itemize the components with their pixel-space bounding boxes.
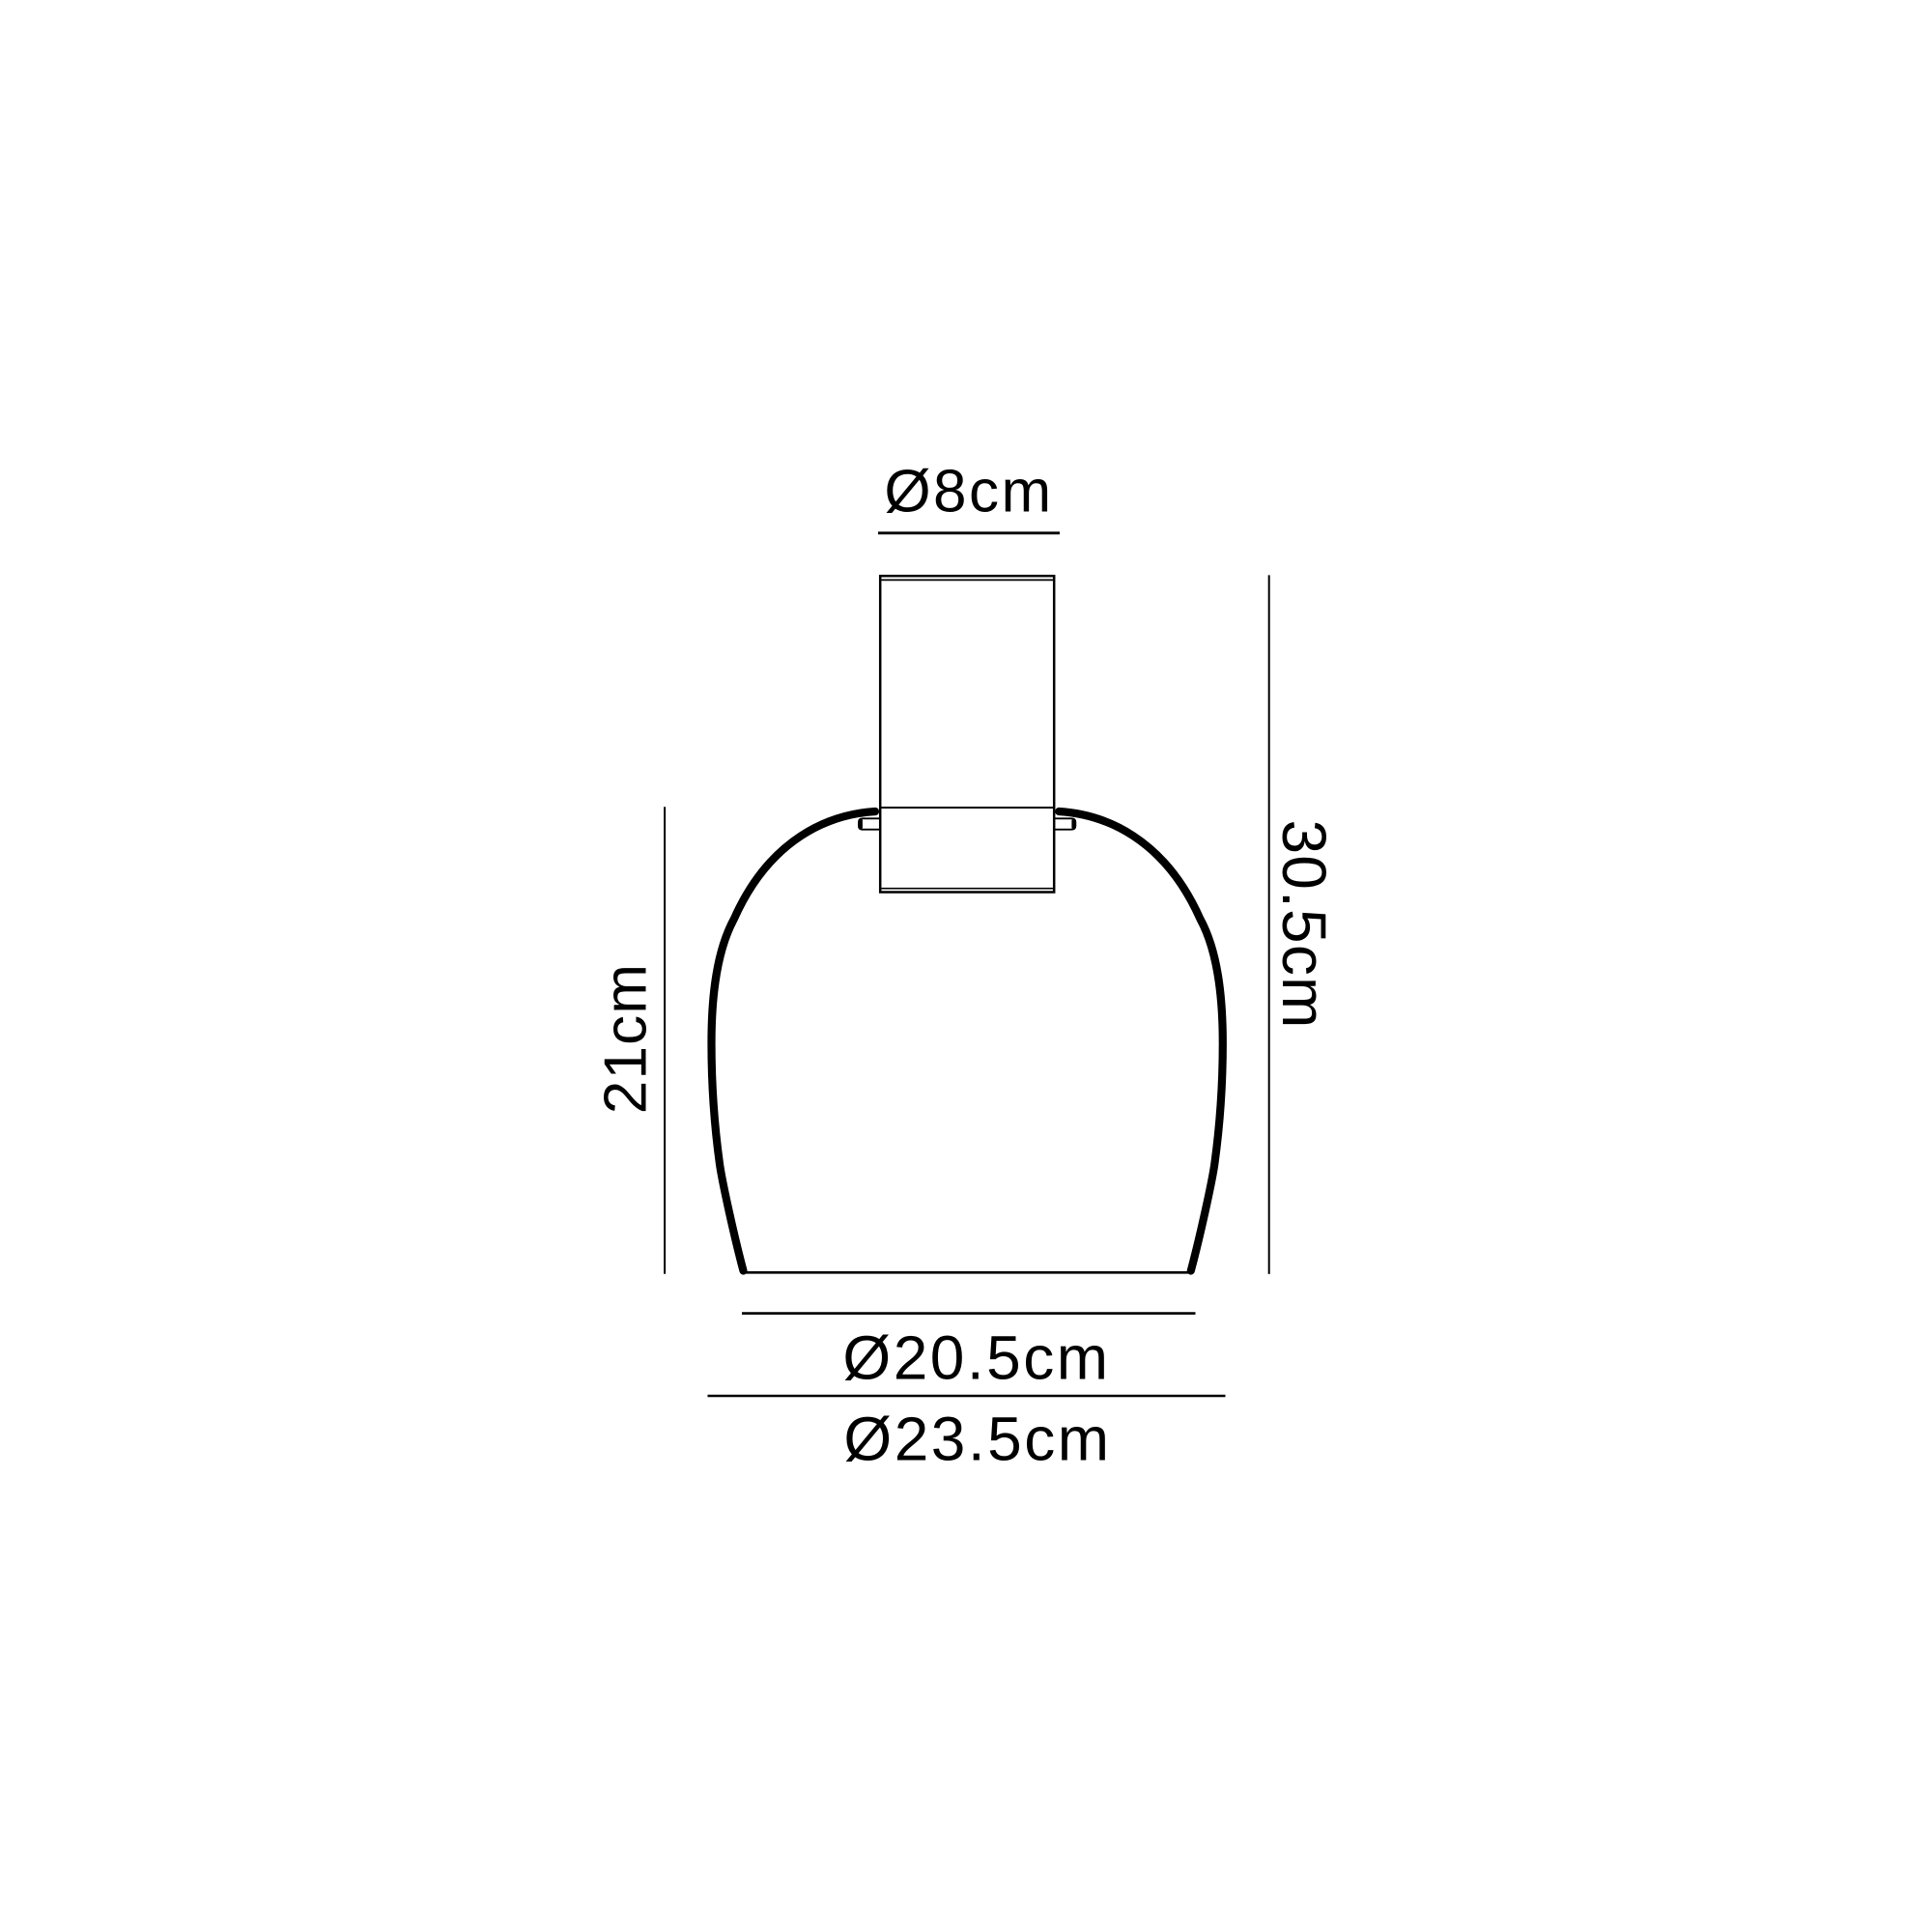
svg-text:21cm: 21cm (593, 963, 660, 1114)
svg-text:30.5cm: 30.5cm (1269, 819, 1339, 1029)
svg-text:Ø20.5cm: Ø20.5cm (842, 1323, 1110, 1393)
svg-text:Ø8cm: Ø8cm (884, 459, 1053, 526)
svg-text:Ø23.5cm: Ø23.5cm (843, 1405, 1111, 1474)
